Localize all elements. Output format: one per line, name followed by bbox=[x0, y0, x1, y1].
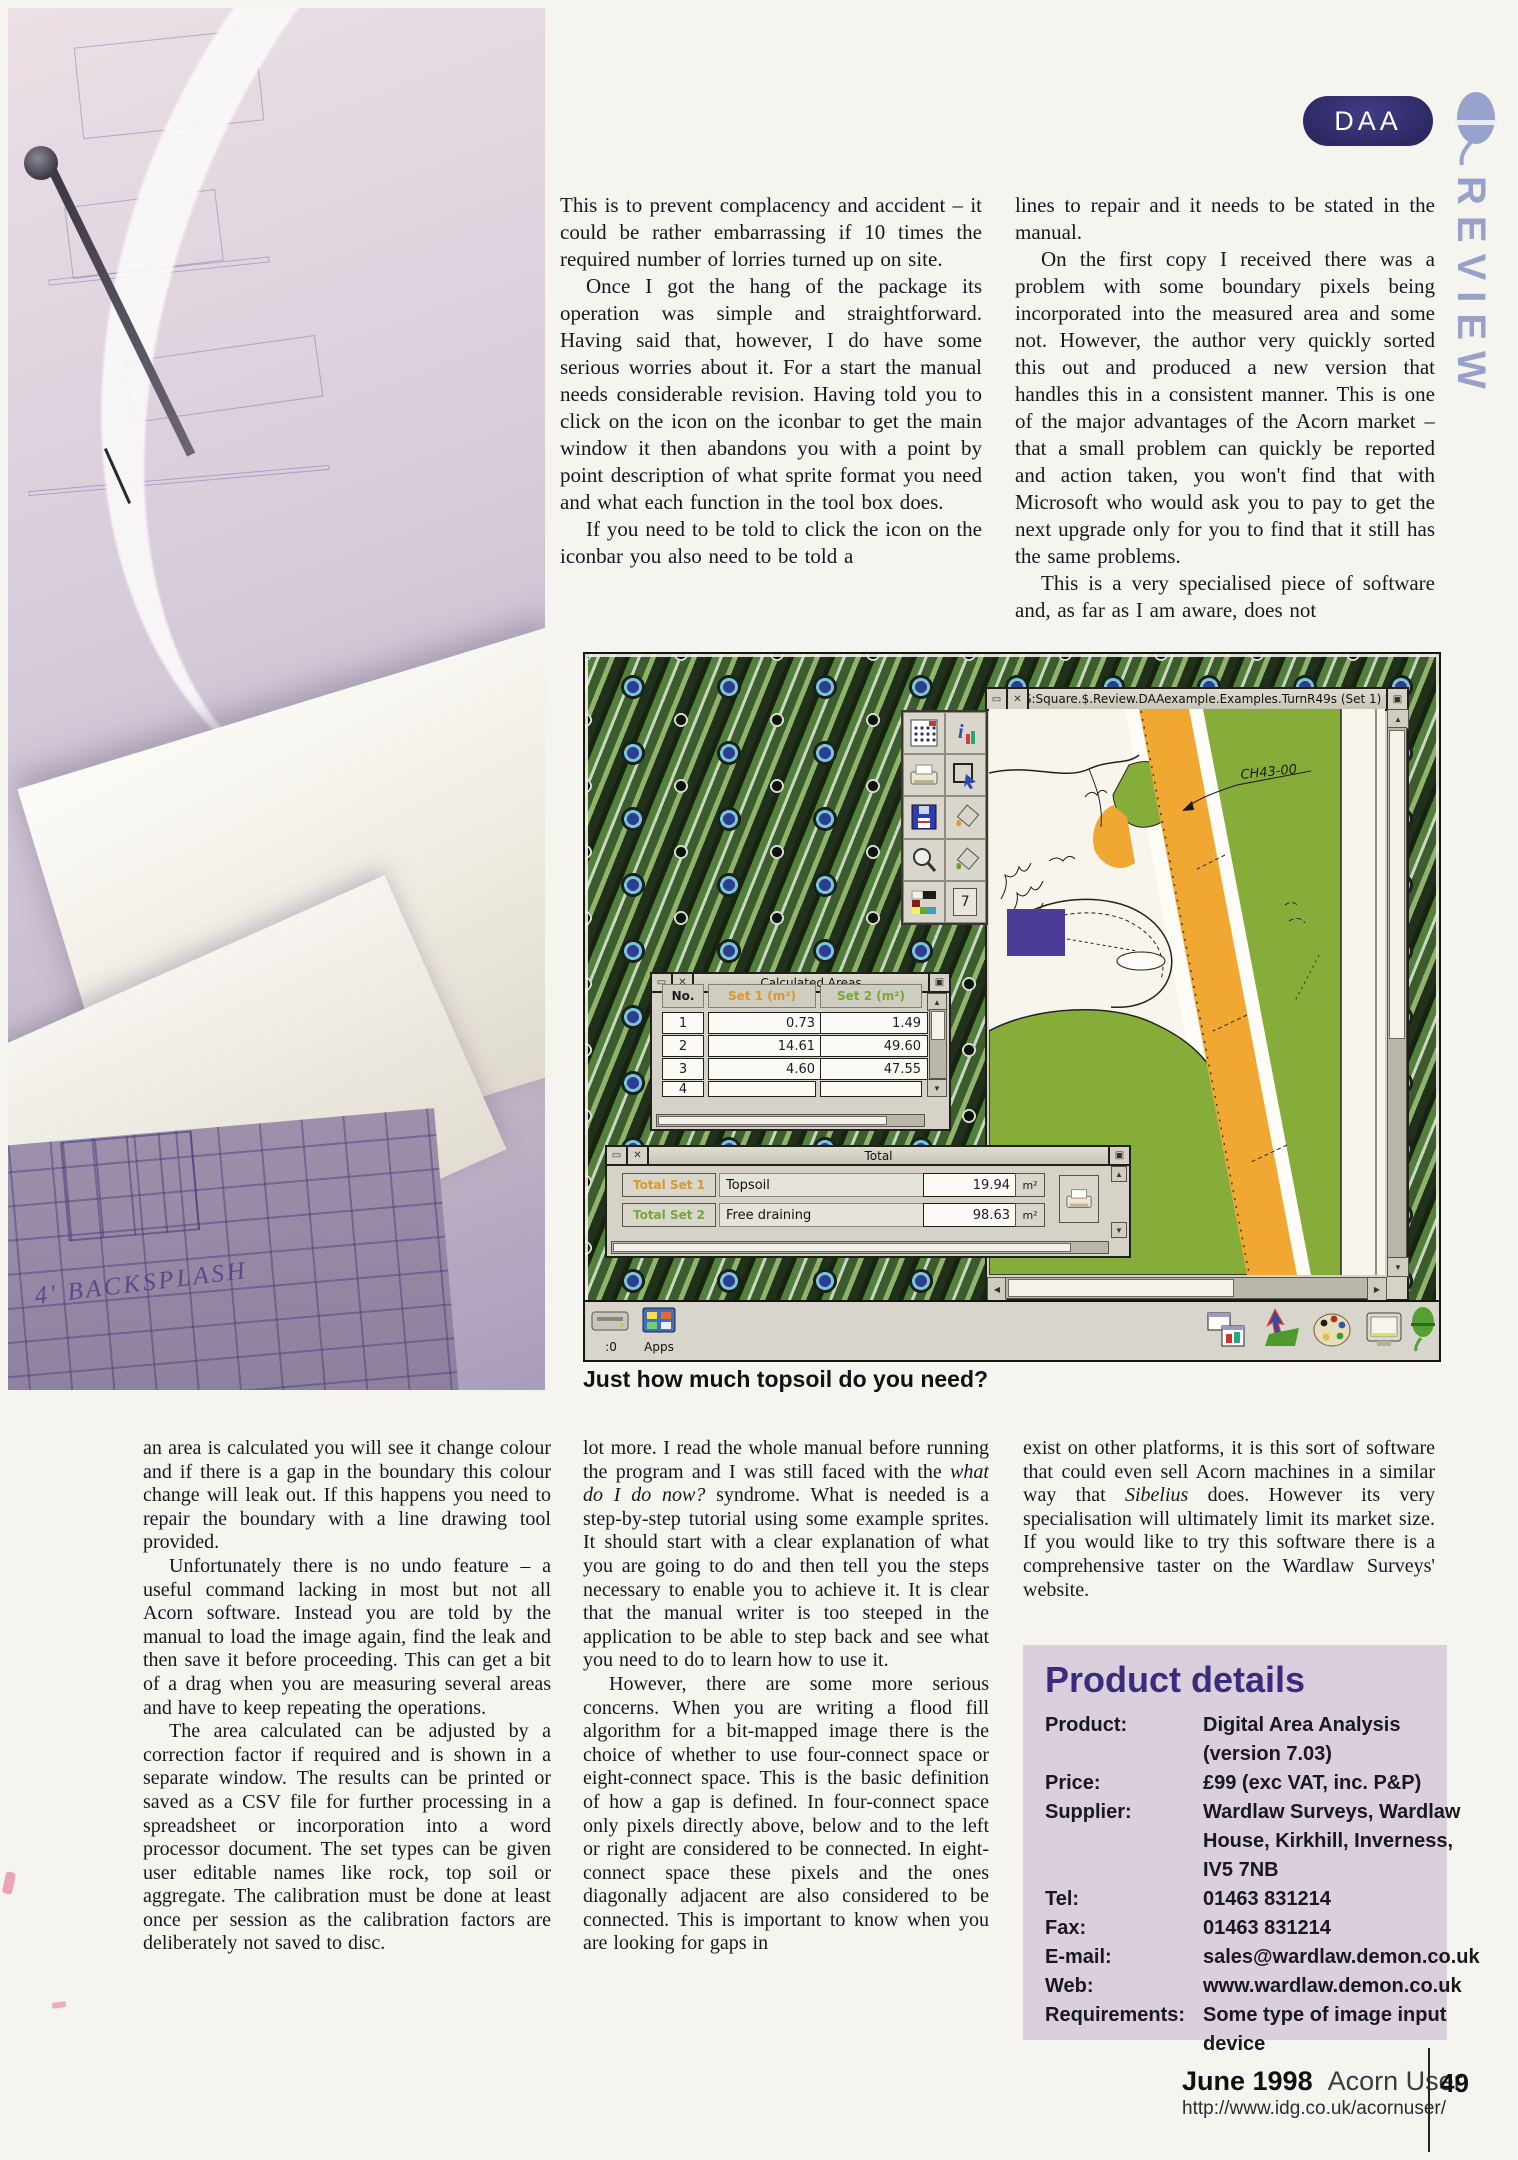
pointer-map-iconbar-item[interactable] bbox=[1257, 1308, 1303, 1355]
paragraph: If you need to be told to click the icon… bbox=[560, 516, 982, 570]
toggle-size-icon[interactable]: ▣ bbox=[1386, 689, 1407, 709]
product-value: £99 (exc VAT, inc. P&P) bbox=[1203, 1769, 1480, 1798]
product-label: Requirements: bbox=[1045, 2001, 1197, 2059]
svg-text:i: i bbox=[958, 721, 964, 743]
print-artifact bbox=[52, 2001, 67, 2009]
toggle-size-icon[interactable]: ▣ bbox=[928, 974, 949, 991]
paragraph: This is a very specialised piece of soft… bbox=[1015, 570, 1435, 624]
risc-os-screenshot: ▭ ✕ S:Square.$.Review.DAAexample.Example… bbox=[583, 652, 1441, 1362]
map-vertical-scrollbar[interactable]: ▲ ▼ bbox=[1387, 709, 1407, 1277]
floppy-drive-iconbar-item[interactable]: :0 bbox=[591, 1308, 631, 1354]
total-set1-button[interactable]: Total Set 1 bbox=[622, 1173, 716, 1197]
apps-icon bbox=[641, 1306, 677, 1334]
screenshot-caption: Just how much topsoil do you need? bbox=[583, 1366, 988, 1393]
product-details-grid: Product: Digital Area Analysis (version … bbox=[1045, 1711, 1433, 2059]
apps-iconbar-item[interactable]: Apps bbox=[637, 1306, 681, 1354]
product-value: 01463 831214 bbox=[1203, 1885, 1480, 1914]
paragraph: However, there are some more serious con… bbox=[583, 1673, 989, 1956]
photo-window-sketch bbox=[60, 1130, 200, 1241]
acorn-icon bbox=[1449, 90, 1501, 166]
page-number: 49 bbox=[1440, 2068, 1469, 2099]
product-label: Supplier: bbox=[1045, 1798, 1197, 1885]
calc-cell: 3 bbox=[662, 1058, 704, 1080]
toggle-size-icon[interactable]: ▣ bbox=[1108, 1147, 1129, 1164]
pointer-map-icon bbox=[1257, 1308, 1303, 1350]
product-label: Fax: bbox=[1045, 1914, 1197, 1943]
back-icon[interactable]: ▭ bbox=[987, 689, 1008, 709]
total-titlebar: ▭ ✕ Total ▣ bbox=[607, 1147, 1129, 1166]
map-horizontal-scrollbar[interactable]: ◀ ▶ bbox=[987, 1277, 1387, 1299]
article-bottom-column-2: lot more. I read the whole manual before… bbox=[583, 1437, 989, 2037]
article-top-column-1: This is to prevent complacency and accid… bbox=[560, 192, 982, 654]
iconbar: :0 Apps bbox=[585, 1300, 1439, 1362]
scroll-down-icon[interactable]: ▼ bbox=[927, 1079, 947, 1097]
back-icon[interactable]: ▭ bbox=[607, 1147, 628, 1164]
acorn-iconbar-item[interactable] bbox=[1409, 1306, 1437, 1357]
fill-set2-icon[interactable] bbox=[945, 839, 987, 881]
scroll-down-icon[interactable]: ▼ bbox=[1111, 1222, 1127, 1238]
scroll-right-icon[interactable]: ▶ bbox=[1367, 1277, 1387, 1301]
total-title: Total bbox=[649, 1147, 1108, 1164]
product-label: Product: bbox=[1045, 1711, 1197, 1769]
text-run: syndrome. What is needed is a step-by-st… bbox=[583, 1484, 989, 1671]
paragraph: The area calculated can be adjusted by a… bbox=[143, 1720, 551, 1956]
product-value: 01463 831214 bbox=[1203, 1914, 1480, 1943]
calculated-areas-window: ▭ ✕ Calculated Areas ▣ No. Set 1 (m²) Se… bbox=[650, 972, 951, 1131]
daa-toolbox: i 7 bbox=[901, 710, 988, 925]
tool-7-box[interactable]: 7 bbox=[945, 881, 987, 923]
map-window-titlebar: ▭ ✕ S:Square.$.Review.DAAexample.Example… bbox=[987, 689, 1407, 711]
product-details-title: Product details bbox=[1045, 1659, 1447, 1701]
product-value: www.wardlaw.demon.co.uk bbox=[1203, 1972, 1480, 2001]
drive-label: :0 bbox=[591, 1340, 631, 1354]
print-icon[interactable] bbox=[903, 754, 945, 796]
product-details-box: Product details Product: Digital Area An… bbox=[1023, 1645, 1447, 2040]
calc-cell: 4.60 bbox=[708, 1058, 822, 1080]
daa-app-iconbar-item[interactable] bbox=[1205, 1310, 1247, 1355]
set2-total-value: 98.63 bbox=[923, 1203, 1017, 1227]
palette-app-icon bbox=[1311, 1310, 1353, 1350]
disc-drive-icon bbox=[591, 1308, 629, 1334]
set2-name-field[interactable]: Free draining bbox=[719, 1203, 925, 1227]
article-bottom-column-1: an area is calculated you will see it ch… bbox=[143, 1437, 551, 2037]
photo-drafting: 4' BACKSPLASH bbox=[8, 8, 545, 1390]
product-label: Web: bbox=[1045, 1972, 1197, 2001]
select-icon[interactable] bbox=[945, 754, 987, 796]
product-label: E-mail: bbox=[1045, 1943, 1197, 1972]
product-label: Price: bbox=[1045, 1769, 1197, 1798]
product-value: Digital Area Analysis (version 7.03) bbox=[1203, 1711, 1480, 1769]
calc-cell: 0.73 bbox=[708, 1012, 822, 1034]
display-icon bbox=[1363, 1310, 1405, 1350]
print-artifact bbox=[2, 1871, 16, 1895]
paragraph: Once I got the hang of the package its o… bbox=[560, 273, 982, 516]
product-label: Tel: bbox=[1045, 1885, 1197, 1914]
print-totals-button[interactable] bbox=[1059, 1175, 1099, 1223]
apps-label: Apps bbox=[637, 1340, 681, 1354]
close-icon[interactable]: ✕ bbox=[628, 1147, 649, 1164]
total-set2-button[interactable]: Total Set 2 bbox=[622, 1203, 716, 1227]
calc-cell: 47.55 bbox=[820, 1058, 928, 1080]
footer-url: http://www.idg.co.uk/acornuser/ bbox=[1182, 2098, 1446, 2120]
article-bottom-column-3: exist on other platforms, it is this sor… bbox=[1023, 1437, 1435, 1657]
daa-badge: DAA bbox=[1303, 96, 1433, 146]
compass-hinge bbox=[24, 146, 58, 180]
calc-cell: 14.61 bbox=[708, 1035, 822, 1057]
paragraph: This is to prevent complacency and accid… bbox=[560, 192, 982, 273]
calc-header-set2: Set 2 (m²) bbox=[820, 984, 922, 1008]
calc-cell: 4 bbox=[662, 1081, 704, 1097]
article-top-column-2: lines to repair and it needs to be state… bbox=[1015, 192, 1435, 654]
map-window-title: S:Square.$.Review.DAAexample.Examples.Tu… bbox=[1029, 689, 1386, 709]
total-window: ▭ ✕ Total ▣ Total Set 1 Topsoil 19.94 m²… bbox=[605, 1145, 1131, 1258]
footer-issue: June 1998 Acorn User bbox=[1182, 2066, 1463, 2097]
scroll-left-icon[interactable]: ◀ bbox=[987, 1277, 1007, 1301]
calc-cell: 49.60 bbox=[820, 1035, 928, 1057]
paragraph: lot more. I read the whole manual before… bbox=[583, 1437, 989, 1673]
fill-set1-icon[interactable] bbox=[945, 796, 987, 838]
calc-cell bbox=[820, 1081, 922, 1097]
section-label-review: REVIEW bbox=[1448, 176, 1493, 400]
set1-total-value: 19.94 bbox=[923, 1173, 1017, 1197]
save-icon[interactable] bbox=[903, 796, 945, 838]
palette-icon[interactable] bbox=[903, 881, 945, 923]
product-value: sales@wardlaw.demon.co.uk bbox=[1203, 1943, 1480, 1972]
palette-app-iconbar-item[interactable] bbox=[1311, 1310, 1353, 1355]
paragraph: lines to repair and it needs to be state… bbox=[1015, 192, 1435, 246]
paragraph: On the first copy I received there was a… bbox=[1015, 246, 1435, 570]
footer-issue-date: June 1998 bbox=[1182, 2066, 1313, 2096]
product-value: Wardlaw Surveys, Wardlaw House, Kirkhill… bbox=[1203, 1798, 1480, 1885]
paragraph: exist on other platforms, it is this sor… bbox=[1023, 1437, 1435, 1602]
calc-cell: 1 bbox=[662, 1012, 704, 1034]
selected-area-square bbox=[1007, 909, 1065, 956]
scroll-up-icon[interactable]: ▲ bbox=[1111, 1166, 1127, 1182]
calc-horizontal-scrollbar[interactable] bbox=[656, 1114, 925, 1127]
acorn-green-icon bbox=[1409, 1306, 1437, 1352]
paragraph: an area is calculated you will see it ch… bbox=[143, 1437, 551, 1555]
product-value: Some type of image input device bbox=[1203, 2001, 1480, 2059]
calc-cell: 2 bbox=[662, 1035, 704, 1057]
scroll-down-icon[interactable]: ▼ bbox=[1387, 1257, 1409, 1277]
set1-name-field[interactable]: Topsoil bbox=[719, 1173, 925, 1197]
set2-unit-button[interactable]: m² bbox=[1015, 1203, 1045, 1227]
text-run: lot more. I read the whole manual before… bbox=[583, 1437, 989, 1483]
total-horizontal-scrollbar[interactable] bbox=[611, 1241, 1109, 1254]
display-iconbar-item[interactable] bbox=[1363, 1310, 1405, 1355]
daa-app-icon bbox=[1205, 1310, 1247, 1350]
info-icon[interactable]: i bbox=[945, 712, 987, 754]
close-icon[interactable]: ✕ bbox=[1008, 689, 1029, 709]
calc-header-set1: Set 1 (m²) bbox=[708, 984, 816, 1008]
printer-icon bbox=[1064, 1185, 1094, 1213]
tool-7-label: 7 bbox=[953, 888, 977, 916]
scroll-up-icon[interactable]: ▲ bbox=[1387, 709, 1409, 729]
set1-unit-button[interactable]: m² bbox=[1015, 1173, 1045, 1197]
grid-calc-icon[interactable] bbox=[903, 712, 945, 754]
calc-cell: 1.49 bbox=[820, 1012, 928, 1034]
zoom-icon[interactable] bbox=[903, 839, 945, 881]
calc-header-no: No. bbox=[662, 984, 704, 1008]
calc-cell bbox=[708, 1081, 816, 1097]
paragraph: Unfortunately there is no undo feature –… bbox=[143, 1555, 551, 1720]
italic-phrase: Sibelius bbox=[1125, 1484, 1188, 1506]
footer-magazine-name bbox=[1320, 2066, 1328, 2096]
